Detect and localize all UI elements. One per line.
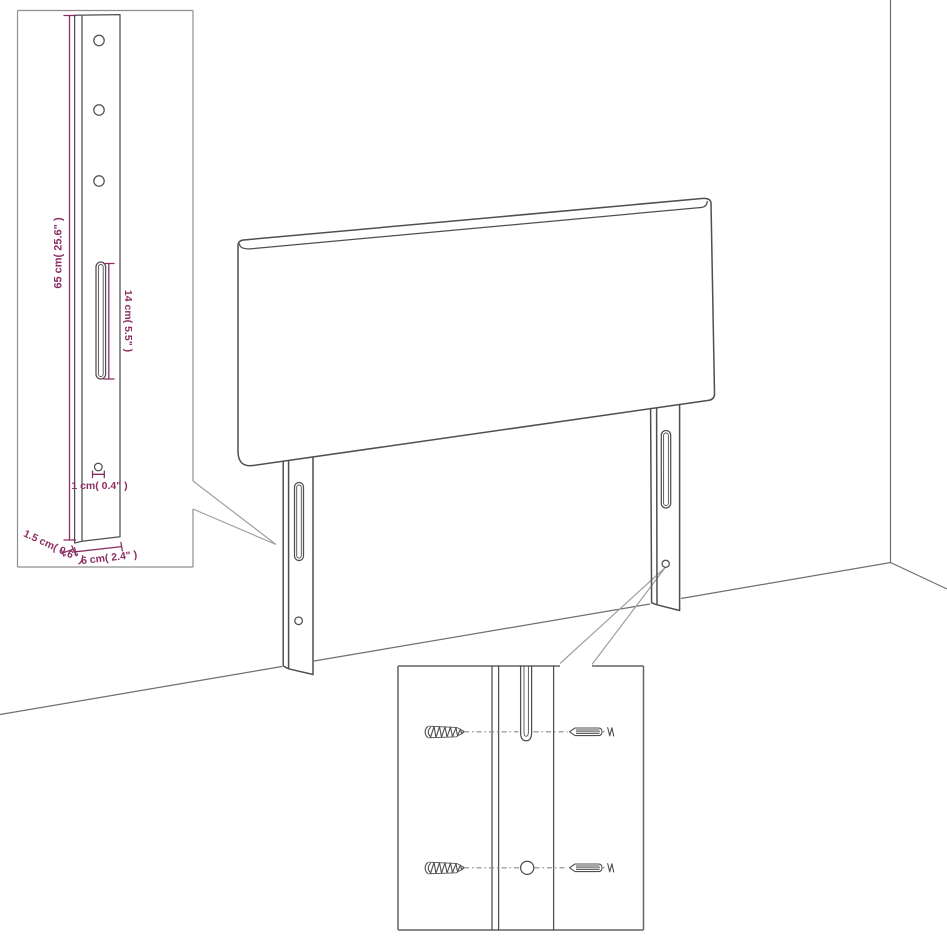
inset-leg-slot-inner xyxy=(98,265,103,377)
label-leg-height: 65 cm( 25.6" ) xyxy=(53,217,65,289)
left-leg-outline xyxy=(283,458,313,675)
wall-plug-icon xyxy=(570,728,614,736)
inset-leg-strip xyxy=(492,666,554,930)
dimension-lines xyxy=(61,16,122,557)
right-leg-slot xyxy=(661,431,670,509)
dimension-inset: 65 cm( 25.6" ) 14 cm( 5.5" ) 1 cm( 0.4" … xyxy=(18,11,194,568)
zoomed-slot-inner xyxy=(524,666,528,736)
inset-leg-hole-1 xyxy=(94,35,104,45)
zoomed-hole xyxy=(521,861,534,874)
inset-leg-small-hole xyxy=(95,463,103,471)
screw-icon xyxy=(425,726,464,738)
dim-line-hole-diameter xyxy=(93,471,105,478)
dim-line-leg-height xyxy=(64,16,76,541)
floor-wall-line-right xyxy=(891,563,947,590)
inset-leg-slot xyxy=(96,262,106,379)
floor-wall-line-left xyxy=(0,563,891,715)
inset-leg-hole-2 xyxy=(94,105,104,115)
wall-plug-icon xyxy=(570,864,614,872)
assembly-diagram: 65 cm( 25.6" ) 14 cm( 5.5" ) 1 cm( 0.4" … xyxy=(0,0,947,947)
inset-leg-drawing xyxy=(75,15,120,543)
hardware-inset xyxy=(398,666,644,930)
left-leg-slot-inner xyxy=(297,485,302,558)
leg-strip-edges xyxy=(492,666,554,930)
assembly-diagram-page: 65 cm( 25.6" ) 14 cm( 5.5" ) 1 cm( 0.4" … xyxy=(0,0,947,947)
headboard-left-leg xyxy=(283,458,313,675)
inset-leg-hole-3 xyxy=(94,176,104,186)
zoomed-slot-outer xyxy=(521,666,532,741)
right-leg-hole xyxy=(662,560,669,567)
label-side-thickness: 1.5 cm( 0.6" ) xyxy=(22,528,86,566)
left-leg-hole xyxy=(295,617,303,625)
label-slot-length: 14 cm( 5.5" ) xyxy=(122,290,134,352)
label-leg-width: 6 cm( 2.4" ) xyxy=(80,549,137,567)
label-hole-diameter: 1 cm( 0.4" ) xyxy=(71,480,127,492)
right-leg-slot-inner xyxy=(664,433,669,506)
left-leg-slot xyxy=(295,483,304,561)
headboard-right-leg xyxy=(651,405,680,611)
screw-icon xyxy=(425,862,464,874)
callout-wedge-left xyxy=(193,481,276,545)
headboard-outline xyxy=(238,198,715,465)
headboard-panel xyxy=(238,198,715,465)
